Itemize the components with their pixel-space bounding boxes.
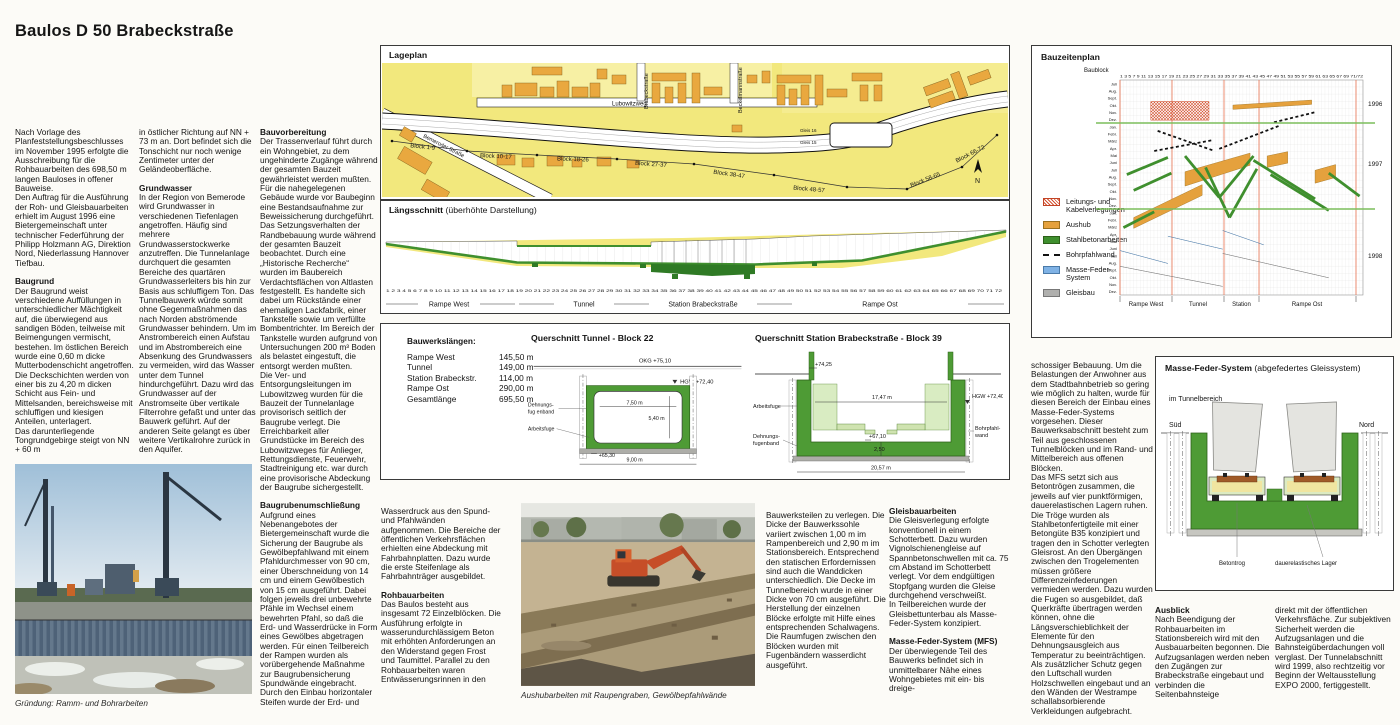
paragraph: Bauwerksteilen zu verlegen. Die Dicke de… — [766, 511, 886, 670]
gantt-month-labels: JuliAug.Sept.Okt.Nov.Dez.Jan.Febr.MärzAp… — [1108, 81, 1117, 294]
svg-text:Juli: Juli — [1111, 253, 1117, 258]
svg-text:+74,25: +74,25 — [815, 362, 832, 368]
svg-text:Dehnungs-: Dehnungs- — [753, 434, 780, 440]
mfs-panel: Masse-Feder-System (abgefedertes Gleissy… — [1155, 356, 1394, 591]
betontrog-label: Betontrog — [1219, 561, 1245, 567]
svg-text:2,50: 2,50 — [874, 447, 885, 453]
bauwerkslaengen-table: Bauwerkslängen: Rampe West145,50 m Tunne… — [407, 336, 534, 405]
text-column-2: in östlicher Richtung auf NN + 73 m an. … — [139, 128, 258, 464]
mfs-title-sub: (abgefedertes Gleissystem) — [1254, 363, 1360, 373]
svg-text:März: März — [1108, 225, 1117, 230]
lageplan-panel: Lageplan — [380, 45, 1010, 200]
gleis15-label: Gleis 15 — [800, 140, 817, 145]
table-row: Tunnel149,00 m — [407, 362, 534, 373]
text-column-6: Gleisbauarbeiten Die Gleisverlegung erfo… — [889, 507, 1009, 703]
paragraph: Der Baugrund weist verschiedene Auffüllu… — [15, 287, 134, 455]
paragraph: In der Region von Bemerode wird Grundwas… — [139, 193, 258, 455]
gantt-block-numbers: 1 3 5 7 9 11 13 15 17 19 21 23 25 27 29 … — [1120, 75, 1363, 79]
street-label-lubowitzweg: Lubowitzweg — [612, 102, 647, 108]
lageplan-title: Lageplan — [389, 50, 427, 60]
laengsschnitt-panel: Längsschnitt (überhöhte Darstellung) — [380, 200, 1010, 314]
svg-text:+65,30: +65,30 — [599, 453, 615, 459]
qs-tunnel-title: Querschnitt Tunnel - Block 22 — [531, 333, 653, 343]
qs-tunnel-drawing: OKG +75,10 HGW +72,40 7,50 m 5,40 m +65,… — [526, 350, 751, 472]
svg-text:20,57 m: 20,57 m — [871, 466, 891, 472]
gleis16-label: Gleis 16 — [800, 128, 817, 133]
svg-text:Sept.: Sept. — [1108, 96, 1117, 101]
hgw-label: HGW +72,40 — [680, 380, 713, 386]
svg-text:17,47 m: 17,47 m — [872, 395, 892, 401]
svg-text:Juni: Juni — [1110, 246, 1117, 251]
svg-text:+67,10: +67,10 — [869, 434, 886, 440]
svg-text:Aug.: Aug. — [1109, 175, 1117, 180]
svg-text:Jan.: Jan. — [1109, 210, 1117, 215]
svg-text:1997: 1997 — [1368, 161, 1382, 168]
paragraph: direkt mit der öffentlichen Verkehrsfläc… — [1275, 606, 1395, 690]
mfs-south-label: Süd — [1169, 422, 1182, 429]
svg-text:Arbeitsfuge: Arbeitsfuge — [528, 427, 555, 433]
svg-text:Sept.: Sept. — [1108, 182, 1117, 187]
text-column-4: Wasserdruck aus den Spund- und Pfahlwänd… — [381, 507, 501, 693]
gantt-axis-label: Baublock — [1084, 68, 1110, 74]
section-rampe-ost: Rampe Ost — [862, 302, 897, 309]
svg-text:Aug.: Aug. — [1109, 89, 1117, 94]
svg-text:Tunnel: Tunnel — [1189, 302, 1207, 308]
svg-text:März: März — [1108, 139, 1117, 144]
paragraph: Nach Vorlage des Planfeststellungsbeschl… — [15, 128, 134, 268]
text-column-3: Bauvorbereitung Der Trassenverlauf führt… — [260, 128, 378, 716]
photo-excavation-works — [521, 503, 755, 686]
mfs-north-label: Nord — [1359, 422, 1374, 429]
section-rampe-west: Rampe West — [429, 302, 469, 309]
platforms — [837, 424, 925, 434]
svg-text:Dez.: Dez. — [1109, 289, 1117, 294]
mfs-title: Masse-Feder-System (abgefedertes Gleissy… — [1165, 363, 1361, 373]
svg-text:9,00 m: 9,00 m — [627, 458, 644, 464]
paragraph: Das Baulos besteht aus insgesamt 72 Einz… — [381, 600, 501, 684]
section-tunnel: Tunnel — [573, 302, 595, 309]
svg-text:HGW +72,40: HGW +72,40 — [972, 394, 1003, 400]
qs-station-drawing: +74,25 17,47 m HGW +72,40 +67,10 2,50 20… — [753, 346, 1003, 476]
svg-text:1996: 1996 — [1368, 101, 1382, 108]
north-label: N — [975, 178, 980, 185]
svg-text:Apr.: Apr. — [1110, 146, 1117, 151]
street-label-brabeck: Brabeckstraße — [644, 73, 650, 109]
svg-text:Nov.: Nov. — [1109, 196, 1117, 201]
paragraph: Der Trassenverlauf führt durch ein Wohng… — [260, 137, 378, 492]
svg-text:Sept.: Sept. — [1108, 268, 1117, 273]
laengsschnitt-title-sub: (überhöhte Darstellung) — [445, 205, 536, 215]
svg-text:Apr.: Apr. — [1110, 232, 1117, 237]
paragraph: Nach Beendigung der Rohbauarbeiten im St… — [1155, 615, 1270, 699]
svg-text:Jan.: Jan. — [1109, 124, 1117, 129]
text-column-8: Ausblick Nach Beendigung der Rohbauarbei… — [1155, 606, 1270, 708]
paragraph: Die Gleisverlegung erfolgte konventionel… — [889, 516, 1009, 628]
svg-text:Okt.: Okt. — [1110, 189, 1117, 194]
svg-text:7,50 m: 7,50 m — [627, 400, 644, 406]
text-column-1: Nach Vorlage des Planfeststellungsbeschl… — [15, 128, 134, 464]
block-ticks: 1 2 3 4 5 6 7 8 9 10 11 12 13 14 15 16 1… — [386, 289, 1002, 293]
paragraph: Wasserdruck aus den Spund- und Pfahlwänd… — [381, 507, 501, 582]
svg-text:fug enband: fug enband — [528, 409, 554, 415]
gantt-section-labels: Rampe West Tunnel Station Rampe Ost — [1120, 296, 1356, 308]
svg-text:Dez.: Dez. — [1109, 117, 1117, 122]
svg-text:Febr.: Febr. — [1108, 218, 1117, 223]
legend-swatch-mfs — [1043, 266, 1060, 274]
paragraph: Der überwiegende Teil des Bauwerks befin… — [889, 647, 1009, 694]
table-row: Rampe West145,50 m — [407, 352, 534, 363]
photo-foundation-works — [15, 464, 252, 694]
svg-text:Juli: Juli — [1111, 167, 1117, 172]
photo-excavation-works-image — [521, 503, 755, 686]
street-label-beckelmann: Beckelmannstraße — [738, 67, 744, 113]
bauzeitenplan-panel: Bauzeitenplan Leitungs- und Kabelverlegu… — [1031, 45, 1392, 338]
page-title: Baulos D 50 Brabeckstraße — [15, 22, 234, 41]
svg-text:Okt.: Okt. — [1110, 275, 1117, 280]
gantt-years: 1996 1997 1998 — [1368, 101, 1382, 260]
text-column-9: direkt mit der öffentlichen Verkehrsfläc… — [1275, 606, 1395, 699]
svg-text:Bohrpfahl-: Bohrpfahl- — [975, 426, 1001, 432]
svg-text:5,40 m: 5,40 m — [649, 416, 666, 422]
okg-label: OKG +75,10 — [639, 359, 671, 365]
svg-text:fugenband: fugenband — [753, 441, 779, 447]
svg-text:Febr.: Febr. — [1108, 132, 1117, 137]
svg-text:Dehnungs-: Dehnungs- — [528, 403, 554, 409]
svg-text:Okt.: Okt. — [1110, 103, 1117, 108]
block-label: Block 18-26 — [557, 156, 590, 163]
svg-text:wand: wand — [974, 433, 988, 439]
svg-text:Rampe West: Rampe West — [1129, 302, 1164, 308]
querschnitte-panel: Bauwerkslängen: Rampe West145,50 m Tunne… — [380, 323, 1010, 480]
legend-swatch-leitungen — [1043, 198, 1060, 206]
svg-text:Mai: Mai — [1111, 153, 1118, 158]
svg-text:Nov.: Nov. — [1109, 282, 1117, 287]
svg-text:Station: Station — [1232, 302, 1251, 308]
lager-label: dauerelastisches Lager — [1275, 561, 1337, 567]
svg-text:Mai: Mai — [1111, 239, 1118, 244]
paragraph: schossiger Bebauung. Um die Belastungen … — [1031, 361, 1154, 716]
photo-caption-2: Aushubarbeiten mit Raupengraben, Gewölbe… — [521, 691, 727, 700]
qs-station-title: Querschnitt Station Brabeckstraße - Bloc… — [755, 333, 942, 343]
svg-text:Juli: Juli — [1111, 81, 1117, 86]
table-row: Gesamtlänge695,50 m — [407, 394, 534, 405]
svg-text:1998: 1998 — [1368, 253, 1382, 260]
section-station: Station Brabeckstraße — [668, 302, 737, 309]
svg-text:Nov.: Nov. — [1109, 110, 1117, 115]
section-labels: Rampe West Tunnel Station Brabeckstraße … — [386, 302, 1004, 309]
table-row: Rampe Ost290,00 m — [407, 383, 534, 394]
text-column-5: Bauwerksteilen zu verlegen. Die Dicke de… — [766, 511, 886, 679]
lageplan-map: Lubowitzweg Bemeroder Straße Brabeckstra… — [382, 63, 1008, 197]
paragraph: Aufgrund eines Nebenangebotes der Bieter… — [260, 511, 378, 707]
table-row: Station Brabeckstr.114,00 m — [407, 373, 534, 384]
laengsschnitt-title: Längsschnitt (überhöhte Darstellung) — [389, 205, 537, 215]
bauzeitenplan-title: Bauzeitenplan — [1041, 52, 1100, 62]
laengsschnitt-title-main: Längsschnitt — [389, 205, 443, 215]
bauwerkslaengen-title: Bauwerkslängen: — [407, 336, 534, 347]
gantt-chart: Baublock 1 3 5 7 9 11 13 15 17 19 21 23 … — [1082, 64, 1382, 326]
svg-text:Aug.: Aug. — [1109, 261, 1117, 266]
photo-caption-1: Gründung: Ramm- und Bohrarbeiten — [15, 699, 148, 708]
svg-text:Dez.: Dez. — [1109, 203, 1117, 208]
text-column-7: schossiger Bebauung. Um die Belastungen … — [1031, 361, 1154, 725]
legend-swatch-stahlbeton — [1043, 236, 1060, 244]
mfs-drawing: im Tunnelbereich Süd Nord — [1157, 381, 1392, 588]
svg-text:Rampe Ost: Rampe Ost — [1292, 302, 1323, 308]
legend-swatch-aushub — [1043, 221, 1060, 229]
train-cars — [1210, 402, 1340, 472]
paragraph: in östlicher Richtung auf NN + 73 m an. … — [139, 128, 258, 175]
legend-swatch-bohrpfahlwand — [1043, 254, 1060, 256]
laengsschnitt-drawing: 1 2 3 4 5 6 7 8 9 10 11 12 13 14 15 16 1… — [382, 218, 1008, 312]
mfs-title-main: Masse-Feder-System — [1165, 363, 1252, 373]
svg-text:Juni: Juni — [1110, 160, 1117, 165]
photo-foundation-works-image — [15, 464, 252, 694]
svg-text:Arbeitsfuge: Arbeitsfuge — [753, 404, 781, 410]
legend-swatch-gleisbau — [1043, 289, 1060, 297]
